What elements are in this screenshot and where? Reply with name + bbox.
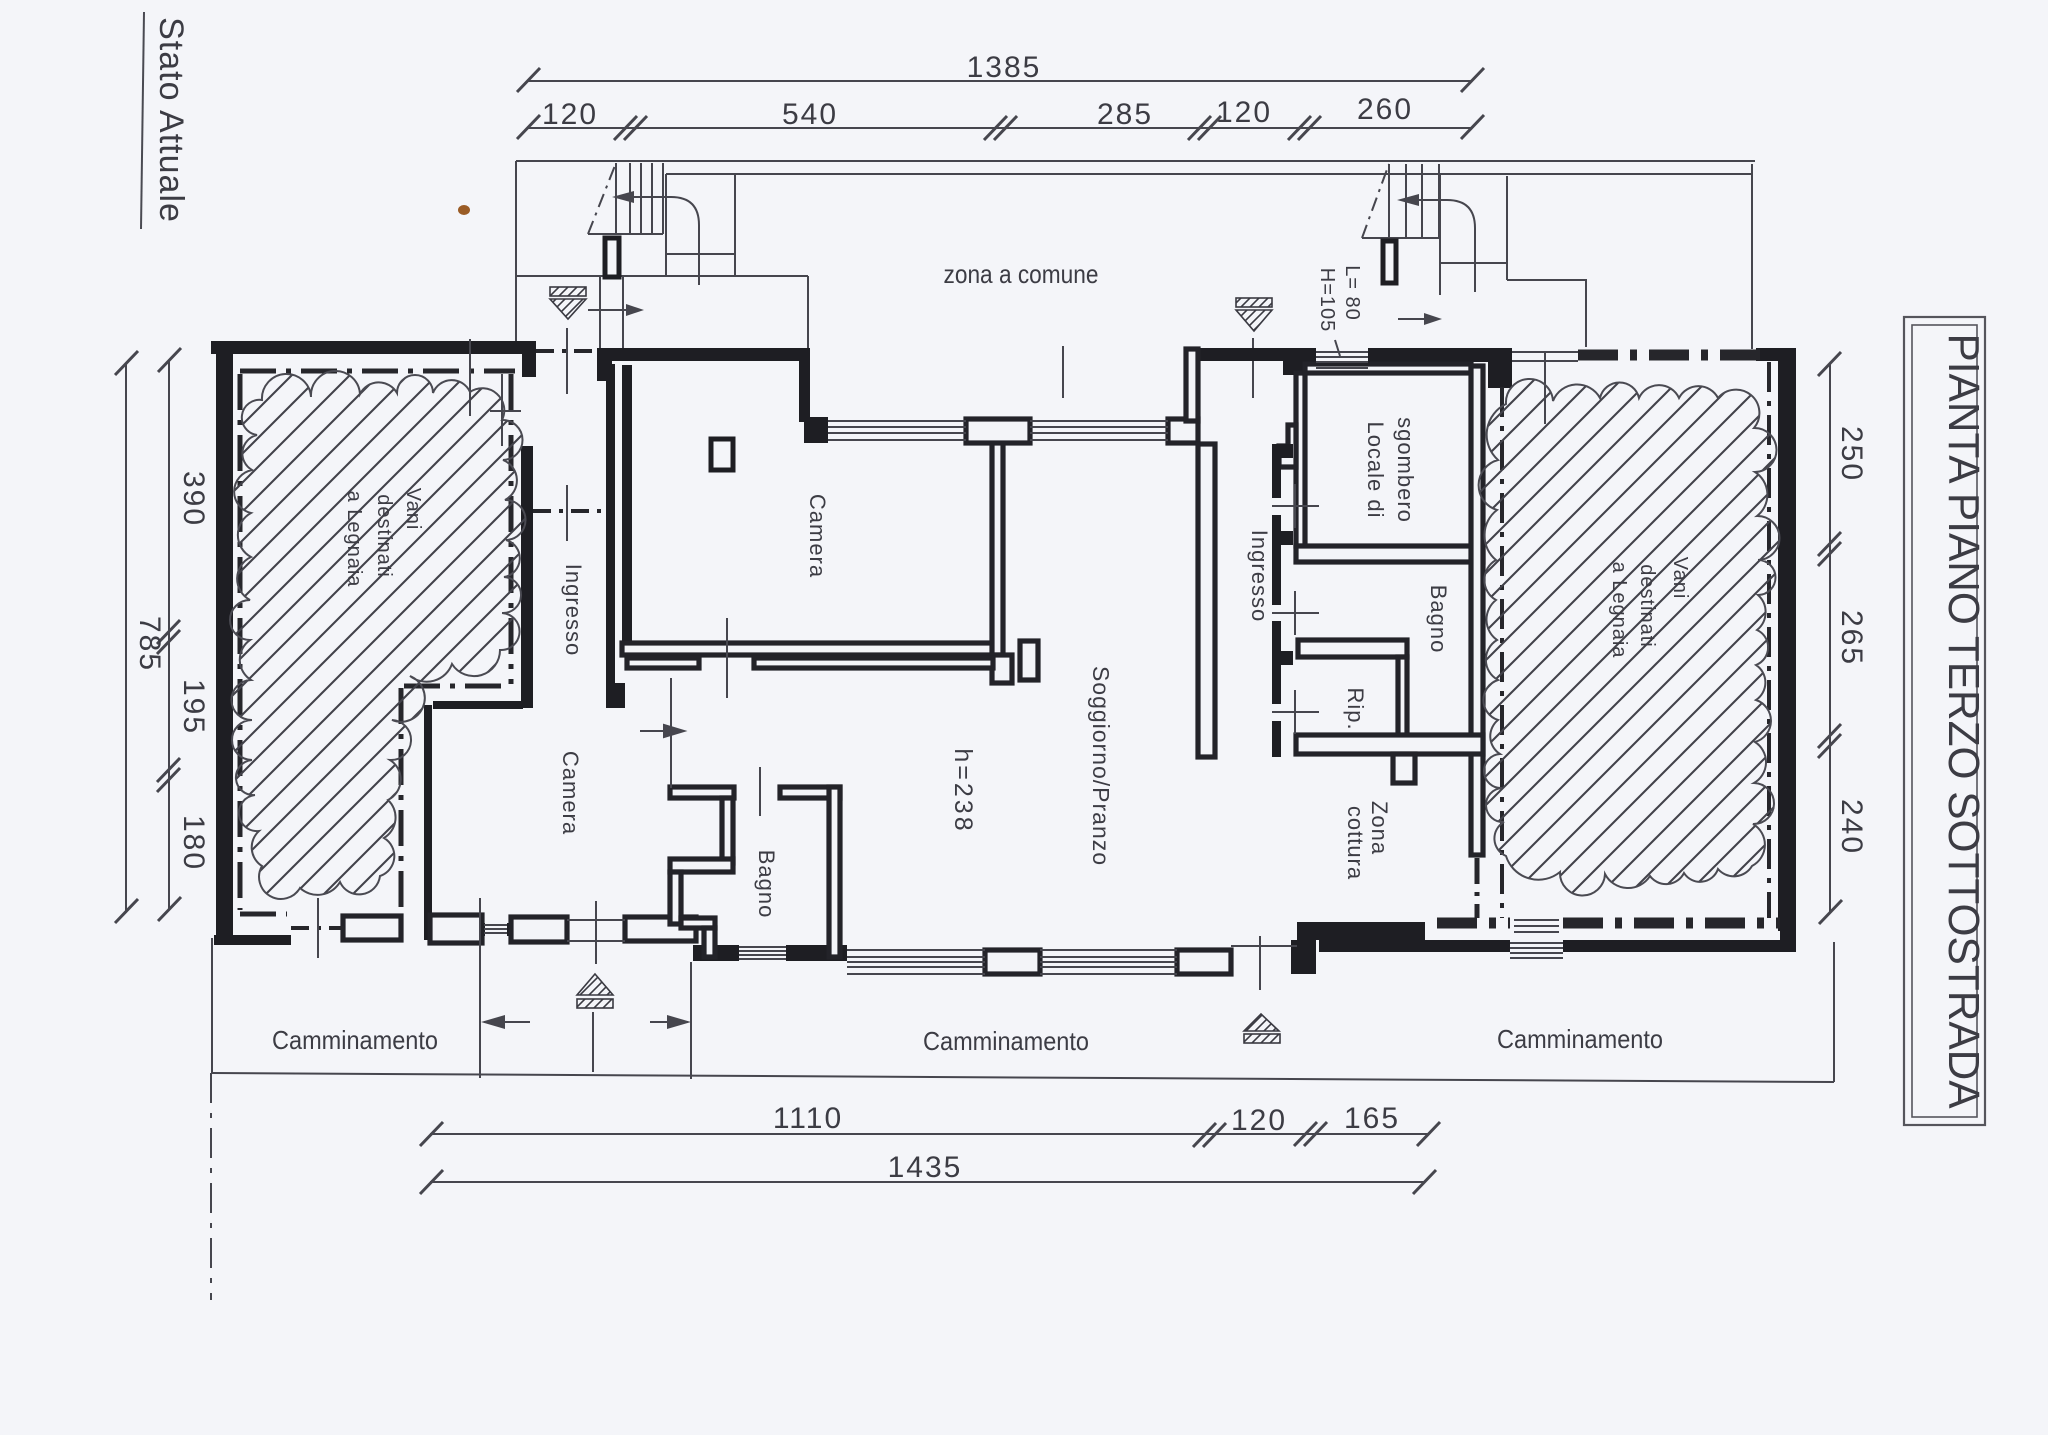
svg-text:Bagno: Bagno	[754, 850, 779, 919]
svg-text:h=238: h=238	[949, 748, 977, 833]
svg-text:destinati: destinati	[1636, 564, 1658, 648]
svg-text:Camminamento: Camminamento	[1497, 1024, 1663, 1054]
svg-text:195: 195	[177, 679, 210, 735]
svg-text:Camminamento: Camminamento	[272, 1025, 438, 1055]
svg-text:cottura: cottura	[1343, 806, 1368, 880]
svg-text:540: 540	[782, 98, 838, 131]
svg-text:Stato Attuale: Stato Attuale	[152, 17, 190, 223]
svg-text:240: 240	[1835, 799, 1868, 855]
svg-text:250: 250	[1835, 426, 1868, 482]
svg-text:260: 260	[1357, 93, 1413, 126]
svg-text:Ingresso: Ingresso	[561, 564, 586, 656]
svg-text:a Legnaia: a Legnaia	[343, 491, 365, 588]
svg-text:Camminamento: Camminamento	[923, 1026, 1089, 1056]
svg-text:165: 165	[1344, 1102, 1400, 1135]
svg-text:265: 265	[1835, 610, 1868, 666]
svg-text:destinati: destinati	[373, 494, 395, 578]
svg-text:Zona: Zona	[1367, 801, 1392, 855]
svg-text:H=105: H=105	[1316, 268, 1338, 333]
svg-text:Camera: Camera	[805, 494, 830, 578]
svg-text:1110: 1110	[773, 1102, 843, 1135]
svg-text:1385: 1385	[967, 51, 1042, 84]
svg-text:PIANTA PIANO TERZO SOTTOSTRADA: PIANTA PIANO TERZO SOTTOSTRADA	[1939, 334, 1988, 1110]
svg-text:180: 180	[177, 815, 210, 871]
svg-text:Ingresso: Ingresso	[1247, 530, 1272, 622]
svg-text:sgombero: sgombero	[1393, 417, 1418, 523]
svg-text:Rip.: Rip.	[1343, 687, 1368, 730]
svg-text:zona a comune: zona a comune	[944, 259, 1099, 289]
svg-text:285: 285	[1097, 98, 1153, 131]
svg-text:L= 80: L= 80	[1341, 265, 1363, 321]
svg-text:a Legnaia: a Legnaia	[1608, 562, 1630, 659]
svg-text:785: 785	[133, 616, 166, 672]
svg-text:Camera: Camera	[558, 751, 583, 835]
svg-text:Soggiorno/Pranzo: Soggiorno/Pranzo	[1088, 666, 1114, 866]
svg-text:1435: 1435	[888, 1151, 963, 1184]
svg-text:Bagno: Bagno	[1426, 585, 1451, 654]
svg-text:120: 120	[1216, 96, 1272, 129]
svg-text:120: 120	[1231, 1104, 1287, 1137]
svg-text:Vani: Vani	[402, 488, 424, 531]
svg-text:Vani: Vani	[1669, 557, 1691, 600]
svg-text:120: 120	[542, 98, 598, 131]
svg-text:Locale di: Locale di	[1363, 421, 1388, 518]
svg-text:390: 390	[177, 471, 210, 527]
